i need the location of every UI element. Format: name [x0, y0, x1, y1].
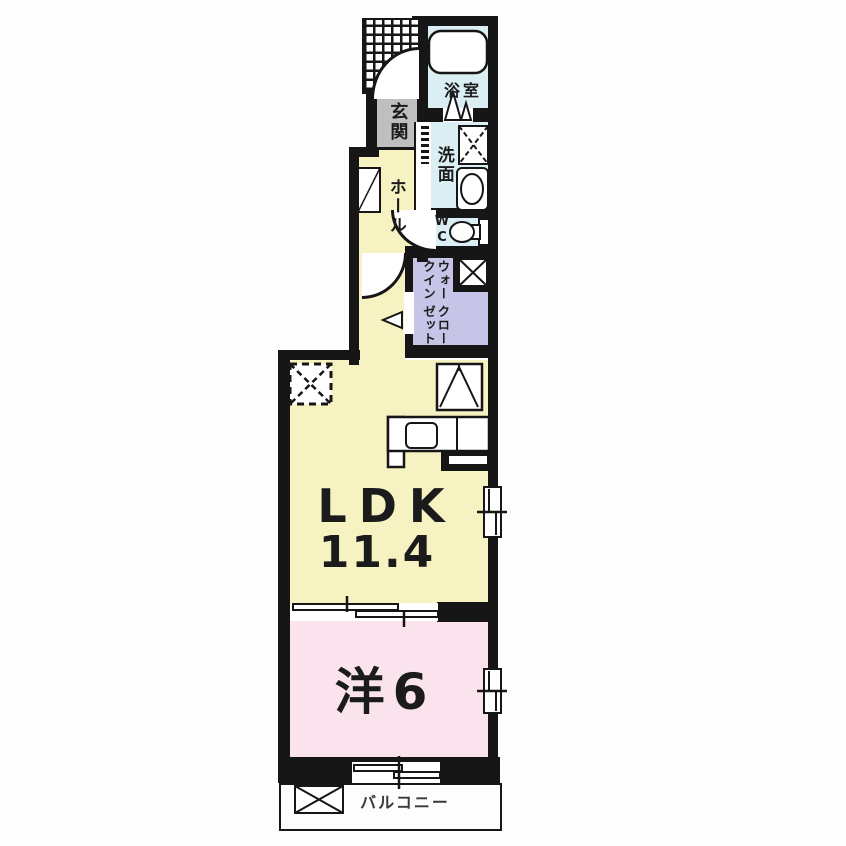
wall-divider-right — [437, 602, 488, 622]
ldk-label: LDK — [292, 481, 472, 531]
closet-label: ウォークイン クローゼット — [413, 258, 457, 348]
entrance-step-line-bottom — [377, 147, 417, 150]
bedroom-label: 洋6 — [290, 662, 480, 724]
wall-shaft-h — [453, 284, 488, 292]
floor-plan: 玄関 浴室 洗面 WC ホール ウォークイン クローゼット LDK 11.4 洋… — [0, 0, 846, 846]
washroom-folding-door — [421, 126, 429, 164]
wall-left-lower — [278, 350, 290, 783]
bath-door-gap — [443, 108, 473, 122]
balcony-label: バルコニー — [350, 792, 460, 814]
wc-label: WC — [432, 211, 450, 249]
hall-label: ホール — [383, 156, 407, 256]
wall-ldk-top — [278, 350, 360, 360]
closet-label-line1: ウォークイン — [421, 258, 450, 303]
closet-label-line2: クローゼット — [421, 303, 450, 348]
entrance-label: 玄関 — [377, 96, 417, 147]
wall-bottom — [278, 757, 500, 783]
wall-left-hall — [349, 147, 359, 365]
washroom-label: 洗面 — [430, 134, 456, 196]
wall-kitchen-nub — [441, 450, 488, 471]
bathroom-label: 浴室 — [436, 78, 490, 104]
ldk-area-label: 11.4 — [292, 529, 462, 577]
wall-right — [488, 16, 498, 785]
